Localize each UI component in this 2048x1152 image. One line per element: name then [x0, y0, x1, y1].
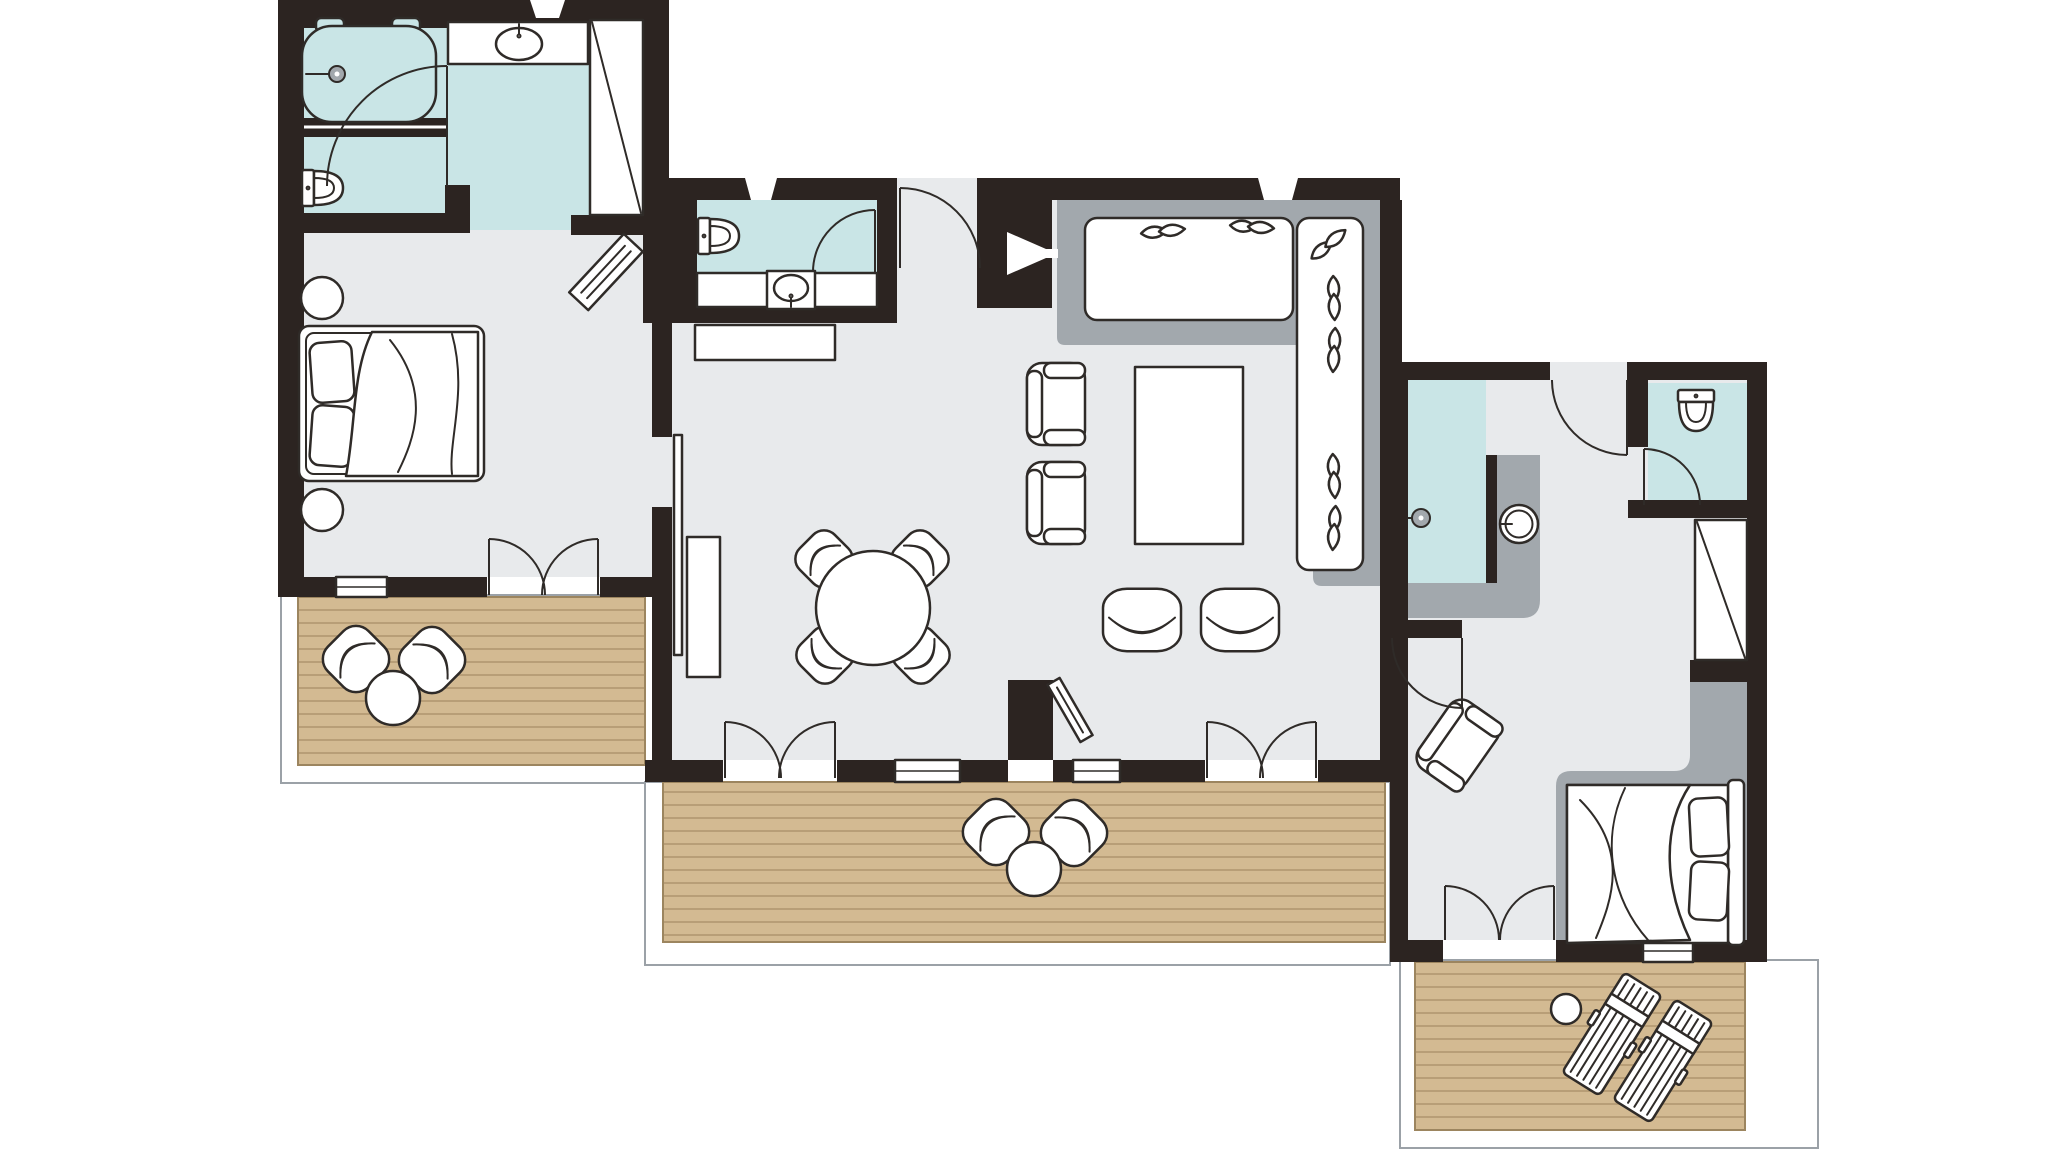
- wall-segment: [1690, 660, 1747, 682]
- window: [1073, 760, 1120, 782]
- double-bed: [299, 326, 484, 481]
- vanity-basin: [448, 22, 588, 64]
- wall-segment: [960, 760, 1008, 782]
- dining-table: [816, 551, 930, 665]
- wall-segment: [387, 577, 487, 597]
- wall-segment: [1747, 362, 1767, 942]
- coffee-table: [1135, 367, 1243, 544]
- wall-segment: [304, 213, 445, 233]
- pillow: [1689, 861, 1730, 921]
- nightstand: [301, 489, 343, 531]
- floor-plan-page: two-bedroom suite floor plan: [0, 0, 2048, 1152]
- wall-segment: [1120, 760, 1205, 782]
- wall-segment: [600, 577, 660, 597]
- wardrobe: [1695, 520, 1747, 660]
- window: [895, 760, 960, 782]
- sideboard: [687, 537, 720, 677]
- double-bed: [1567, 780, 1744, 945]
- wall-niche: [530, 0, 565, 18]
- console-table: [695, 325, 835, 360]
- wall-segment: [1052, 178, 1400, 200]
- wall-segment: [1318, 760, 1402, 782]
- toilet-icon: [302, 170, 343, 206]
- shower-partition-wall: [1486, 455, 1497, 583]
- wall-segment: [645, 760, 723, 782]
- lounge-chair: [1103, 589, 1181, 651]
- armchair: [1027, 363, 1085, 445]
- wardrobe: [590, 20, 643, 215]
- wall-segment: [1628, 363, 1648, 447]
- armchair: [1027, 462, 1085, 544]
- unit-2-entrance-threshold: [1550, 362, 1627, 380]
- pillow: [1689, 797, 1730, 857]
- wall-niche: [1258, 178, 1298, 200]
- shower-floor: [1408, 380, 1486, 583]
- toilet-icon: [698, 218, 739, 254]
- floor-plan-svg: [0, 0, 2048, 1152]
- headboard: [1728, 780, 1744, 945]
- toilet-icon: [1678, 390, 1714, 431]
- round-washbasin: [1500, 505, 1538, 543]
- wall-segment: [1390, 362, 1550, 380]
- window: [336, 577, 387, 597]
- sofa-cushion-icon: [1328, 276, 1341, 320]
- wall-segment: [445, 185, 470, 233]
- wall-segment: [877, 200, 897, 307]
- wall-segment: [1053, 760, 1073, 782]
- sliding-door: [674, 435, 682, 655]
- wall-segment: [1390, 940, 1443, 962]
- wall-segment: [1390, 620, 1462, 638]
- wall-segment: [1628, 500, 1747, 518]
- wall-segment: [652, 507, 672, 782]
- wall-segment: [1390, 380, 1408, 940]
- wall-segment: [643, 178, 697, 323]
- nightstand: [301, 277, 343, 319]
- wall-segment: [278, 577, 336, 597]
- side-table: [1551, 994, 1581, 1024]
- wall-segment: [837, 760, 895, 782]
- lounge-chair: [1201, 589, 1279, 651]
- tv-pier-wall: [1008, 680, 1053, 760]
- pillow: [309, 341, 355, 404]
- terrace-table: [366, 671, 420, 725]
- vanity-basin: [697, 271, 877, 309]
- terrace-table: [1007, 842, 1061, 896]
